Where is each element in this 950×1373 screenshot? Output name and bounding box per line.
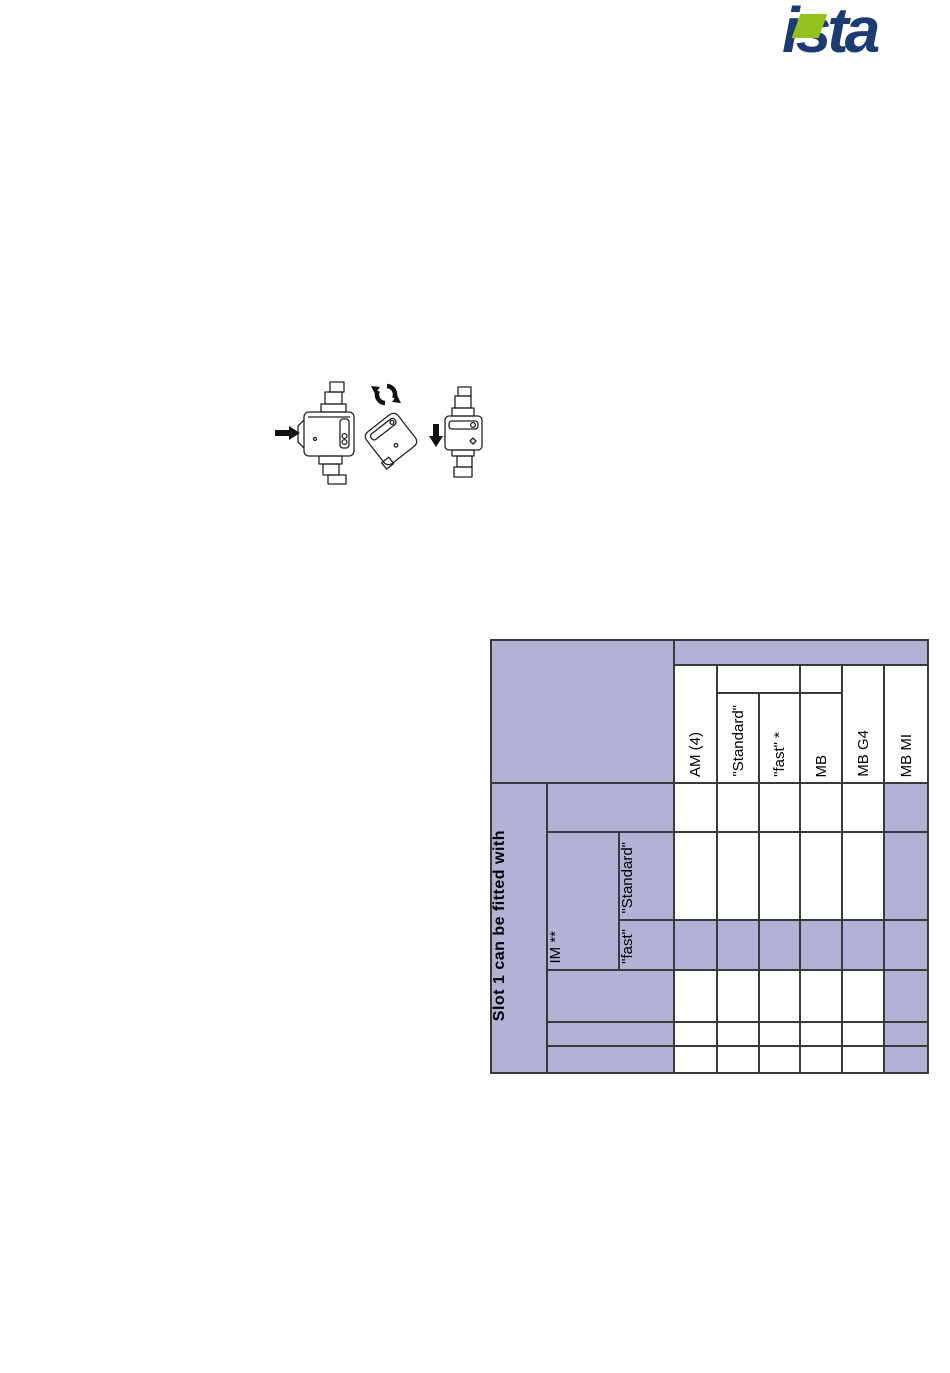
matrix-cell xyxy=(800,1022,842,1046)
matrix-cell xyxy=(842,970,884,1022)
row-header-im-fast-label: "fast" xyxy=(620,929,635,964)
slot1-compatibility-table: AM (4) MB G4 MB MI "Standard" "fast" * M… xyxy=(490,639,929,1074)
col-header-am4: AM (4) xyxy=(674,665,717,783)
matrix-cell xyxy=(884,783,928,832)
col-header-mbg4-label: MB G4 xyxy=(856,730,871,777)
matrix-cell xyxy=(842,783,884,832)
matrix-cell xyxy=(884,970,928,1022)
matrix-cell xyxy=(800,783,842,832)
rotation-arrows-icon xyxy=(371,386,401,403)
meter-tilted-45-drawing xyxy=(361,411,419,469)
row-header-im-standard: "Standard" xyxy=(619,832,674,920)
matrix-cell xyxy=(759,920,800,970)
matrix-cell xyxy=(842,1046,884,1073)
row-header-blank-2 xyxy=(547,970,674,1022)
matrix-cell xyxy=(800,832,842,920)
col-header-standard: "Standard" xyxy=(717,693,759,783)
col-header-fast-label: "fast" * xyxy=(772,732,787,777)
col-header-fast: "fast" * xyxy=(759,693,800,783)
row-header-im-standard-label: "Standard" xyxy=(620,842,635,914)
meter-mounting-figures xyxy=(268,372,488,492)
col-header-mb: MB xyxy=(800,693,842,783)
flow-arrow-right-icon xyxy=(275,426,300,440)
matrix-cell xyxy=(717,1022,759,1046)
row-group-header: Slot 1 can be fitted with xyxy=(491,783,547,1073)
matrix-cell xyxy=(717,783,759,832)
meter-side-drawing xyxy=(445,387,482,477)
row-header-blank-4 xyxy=(547,1046,674,1073)
matrix-cell xyxy=(759,832,800,920)
matrix-cell xyxy=(884,920,928,970)
row-group-label: Slot 1 can be fitted with xyxy=(492,830,508,1021)
row-header-im-fast: "fast" xyxy=(619,920,674,970)
matrix-cell xyxy=(842,1022,884,1046)
matrix-cell xyxy=(674,832,717,920)
col-header-am4-label: AM (4) xyxy=(688,732,703,777)
matrix-cell xyxy=(759,1046,800,1073)
col-header-mbmi: MB MI xyxy=(884,665,928,783)
table-top-left-block xyxy=(491,640,674,783)
matrix-cell xyxy=(674,783,717,832)
row-header-im: IM ** xyxy=(547,832,619,970)
col-header-mbmi-label: MB MI xyxy=(899,734,914,777)
meter-mounting-figure-svg xyxy=(268,372,488,492)
matrix-cell xyxy=(717,832,759,920)
matrix-cell xyxy=(717,920,759,970)
matrix-cell xyxy=(800,920,842,970)
matrix-cell xyxy=(674,1046,717,1073)
matrix-cell xyxy=(759,783,800,832)
ista-logo: ista xyxy=(782,2,947,74)
slot1-compatibility-table-wrap: AM (4) MB G4 MB MI "Standard" "fast" * M… xyxy=(490,639,929,1074)
matrix-cell xyxy=(800,1046,842,1073)
matrix-cell xyxy=(759,1022,800,1046)
matrix-cell xyxy=(884,1022,928,1046)
subheader-blank-standard-fast xyxy=(717,665,800,693)
row-header-im-label: IM ** xyxy=(548,931,563,964)
col-header-mb-label: MB xyxy=(814,755,829,778)
matrix-cell xyxy=(717,1046,759,1073)
col-header-mbg4: MB G4 xyxy=(842,665,884,783)
table-top-band xyxy=(674,640,928,665)
document-page: ista xyxy=(0,0,950,1373)
matrix-cell xyxy=(842,832,884,920)
subheader-blank-mb xyxy=(800,665,842,693)
col-header-standard-label: "Standard" xyxy=(731,705,746,777)
flow-arrow-down-icon xyxy=(429,424,443,447)
matrix-cell xyxy=(884,832,928,920)
row-header-blank-1 xyxy=(547,783,674,832)
meter-front-drawing xyxy=(298,382,354,484)
matrix-cell xyxy=(674,920,717,970)
matrix-cell xyxy=(800,970,842,1022)
matrix-cell xyxy=(759,970,800,1022)
matrix-cell xyxy=(884,1046,928,1073)
matrix-cell xyxy=(674,1022,717,1046)
matrix-cell xyxy=(842,920,884,970)
matrix-cell xyxy=(717,970,759,1022)
row-header-blank-3 xyxy=(547,1022,674,1046)
matrix-cell xyxy=(674,970,717,1022)
